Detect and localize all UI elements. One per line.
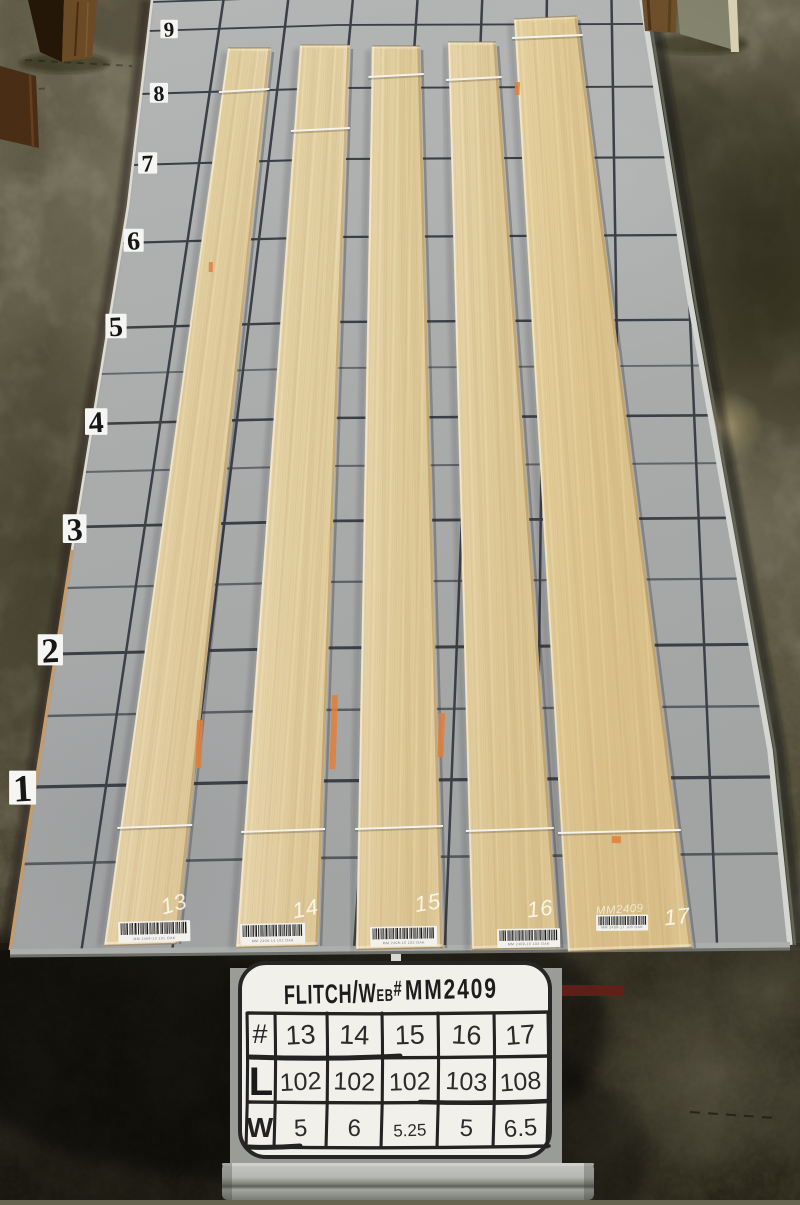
svg-text:9: 9 — [163, 17, 175, 42]
svg-text:102: 102 — [279, 1067, 322, 1097]
svg-text:L: L — [249, 1060, 273, 1104]
svg-text:102: 102 — [333, 1067, 376, 1096]
svg-text:13: 13 — [285, 1019, 317, 1051]
svg-text:2: 2 — [40, 631, 60, 671]
svg-text:MM 2409-17 105 OAK: MM 2409-17 105 OAK — [601, 925, 643, 929]
svg-text:5: 5 — [293, 1115, 308, 1143]
svg-text:6.5: 6.5 — [503, 1114, 538, 1143]
svg-text:15: 15 — [413, 888, 443, 917]
svg-text:3: 3 — [66, 511, 84, 548]
svg-text:14: 14 — [290, 894, 321, 924]
svg-text:16: 16 — [451, 1019, 483, 1051]
svg-text:103: 103 — [445, 1067, 488, 1097]
svg-text:108: 108 — [499, 1067, 543, 1098]
svg-text:MM 2409-15 103 OAK: MM 2409-15 103 OAK — [383, 941, 425, 946]
svg-text:6: 6 — [347, 1115, 361, 1142]
svg-text:6: 6 — [126, 226, 140, 256]
svg-text:14: 14 — [339, 1019, 370, 1050]
svg-text:#: # — [252, 1019, 267, 1049]
svg-text:7: 7 — [141, 151, 154, 178]
svg-text:5: 5 — [459, 1115, 474, 1143]
svg-text:17: 17 — [663, 903, 692, 931]
svg-text:4: 4 — [88, 406, 105, 440]
svg-text:5.25: 5.25 — [393, 1120, 427, 1140]
svg-text:1: 1 — [12, 768, 33, 811]
svg-text:W: W — [247, 1112, 274, 1143]
svg-text:MM 2409-16 104 OAK: MM 2409-16 104 OAK — [508, 942, 550, 947]
svg-text:8: 8 — [153, 81, 165, 107]
svg-text:15: 15 — [394, 1019, 425, 1050]
svg-text:5: 5 — [108, 312, 124, 344]
svg-text:16: 16 — [525, 895, 554, 923]
svg-text:17: 17 — [504, 1019, 536, 1051]
svg-text:MM2409: MM2409 — [405, 974, 499, 1006]
svg-text:102: 102 — [388, 1067, 431, 1096]
